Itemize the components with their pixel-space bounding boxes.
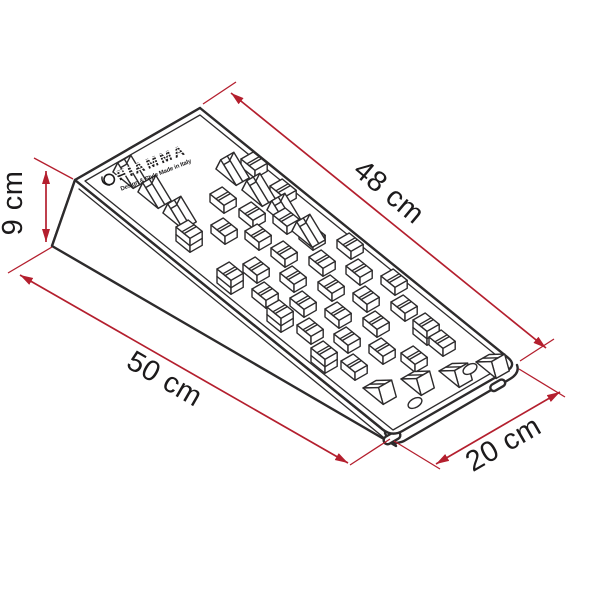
diagram-canvas: FIAMMA Design & Style Made in Italy 48 c… bbox=[0, 0, 600, 600]
dimension-48cm-label: 48 cm bbox=[347, 154, 430, 231]
dimension-9cm-label: 9 cm bbox=[0, 171, 29, 236]
levelling-ramp-diagram: FIAMMA Design & Style Made in Italy 48 c… bbox=[0, 0, 600, 600]
dimension-20cm-label: 20 cm bbox=[460, 410, 547, 478]
dimension-50cm-label: 50 cm bbox=[121, 345, 208, 413]
